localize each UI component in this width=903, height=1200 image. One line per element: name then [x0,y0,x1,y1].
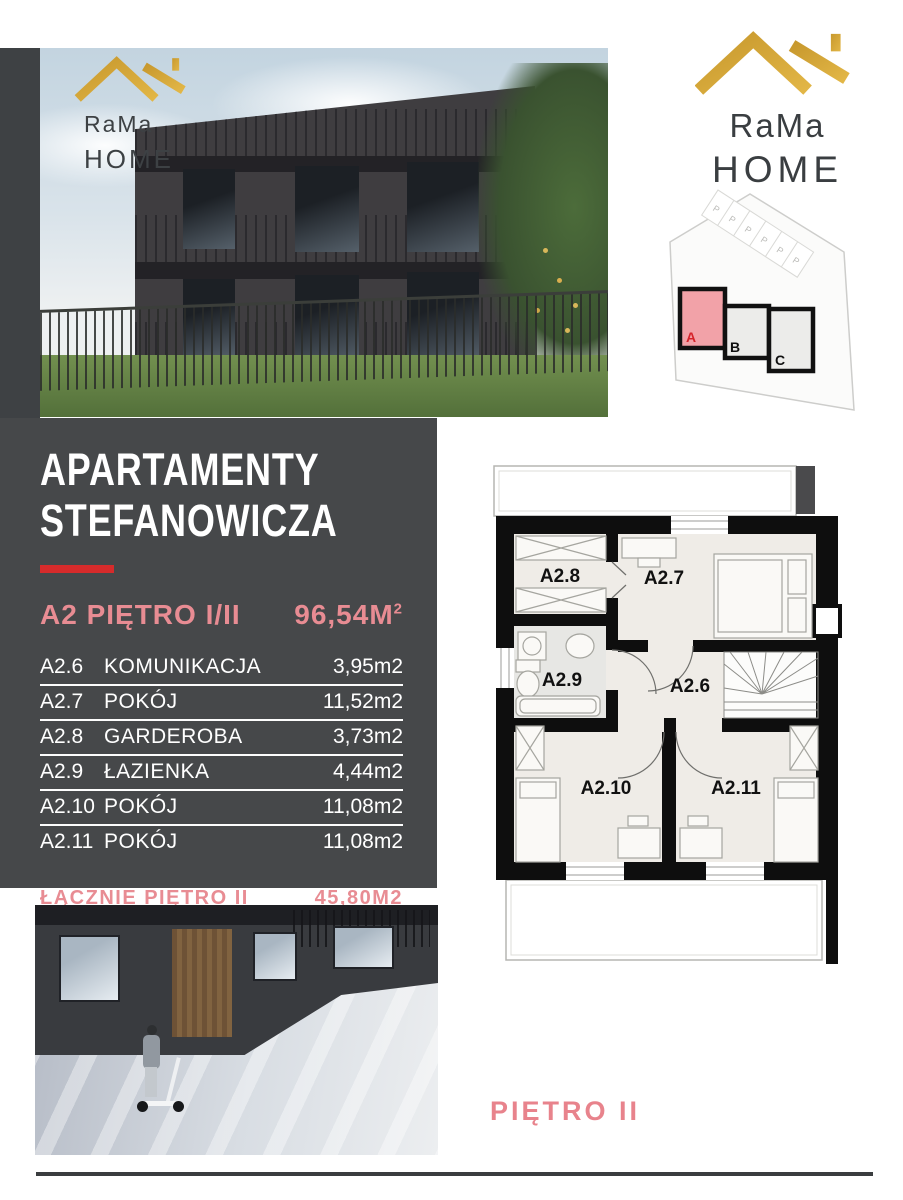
child-figure [147,1025,157,1035]
floor-plan: A2.8 A2.7 A2.9 A2.6 A2.10 A2.11 [466,450,898,1102]
room-label-a2-7: A2.7 [644,568,684,589]
building-photo-bottom [35,905,438,1155]
room-area: 4,44m2 [333,760,403,784]
site-plan: P P P P P P A B C [648,178,898,418]
window [333,926,393,969]
room-label-a2-6: A2.6 [670,676,710,697]
scooter-wheel [137,1101,148,1112]
site-block-c-label: C [775,352,785,368]
wood-door [172,929,232,1037]
room-code: A2.7 [40,690,104,714]
unit-area: 96,54M2 [294,599,403,631]
floor-caption: PIĘTRO II [490,1096,640,1127]
room-code: A2.8 [40,725,104,749]
rama-roof-icon [695,28,860,98]
room-name: POKÓJ [104,690,323,714]
site-block-b-label: B [730,339,740,355]
tree-flowers [543,248,548,253]
table-row: A2.9 ŁAZIENKA 4,44m2 [40,756,403,791]
window [295,166,359,252]
room-code: A2.6 [40,655,104,679]
flyer-page: RaMa HOME RaMa HOME P P P P [0,0,903,1200]
balcony-top [494,466,815,516]
room-name: ŁAZIENKA [104,760,333,784]
photo-logo: RaMa HOME [74,54,194,175]
unit-label: A2 PIĘTRO I/II [40,599,241,631]
bottom-divider [36,1172,873,1176]
room-name: POKÓJ [104,830,323,854]
project-title-line1: APARTAMENTY [40,444,330,495]
window [183,169,235,249]
left-accent-stripe [0,48,40,420]
room-label-a2-9: A2.9 [542,670,582,691]
child-figure-body [143,1035,160,1069]
room-label-a2-8: A2.8 [540,566,580,587]
room-label-a2-10: A2.10 [581,778,632,799]
building-photo-top: RaMa HOME [40,48,608,417]
table-row: A2.11 POKÓJ 11,08m2 [40,826,403,859]
brand-name: RaMa [655,107,900,145]
unit-subhead: A2 PIĘTRO I/II 96,54M2 [40,599,403,631]
room-name: POKÓJ [104,795,323,819]
scooter-wheel [173,1101,184,1112]
window [59,935,119,1002]
table-row: A2.6 KOMUNIKACJA 3,95m2 [40,651,403,686]
site-block-a-label: A [686,329,696,345]
room-area: 3,95m2 [333,655,403,679]
brand-block: RaMa HOME [655,28,900,191]
table-row: A2.10 POKÓJ 11,08m2 [40,791,403,826]
project-title: APARTAMENTY STEFANOWICZA [40,444,330,547]
rama-roof-icon [74,54,194,104]
title-accent-bar [40,565,114,573]
child-figure-legs [145,1067,157,1097]
table-row: A2.7 POKÓJ 11,52m2 [40,686,403,721]
window [407,162,479,252]
window [253,932,297,981]
room-area: 11,08m2 [323,830,403,854]
room-label-a2-11: A2.11 [711,778,761,799]
room-table: A2.6 KOMUNIKACJA 3,95m2 A2.7 POKÓJ 11,52… [40,651,403,859]
room-area: 11,52m2 [323,690,403,714]
brand-home: HOME [84,144,194,175]
room-area: 11,08m2 [323,795,403,819]
room-name: KOMUNIKACJA [104,655,333,679]
room-code: A2.10 [40,795,104,819]
room-code: A2.9 [40,760,104,784]
room-code: A2.11 [40,830,104,854]
table-row: A2.8 GARDEROBA 3,73m2 [40,721,403,756]
room-area: 3,73m2 [333,725,403,749]
room-name: GARDEROBA [104,725,333,749]
balcony-bottom [506,880,822,960]
brand-name: RaMa [84,111,194,138]
project-title-line2: STEFANOWICZA [40,495,330,546]
info-panel: APARTAMENTY STEFANOWICZA A2 PIĘTRO I/II … [0,418,437,888]
